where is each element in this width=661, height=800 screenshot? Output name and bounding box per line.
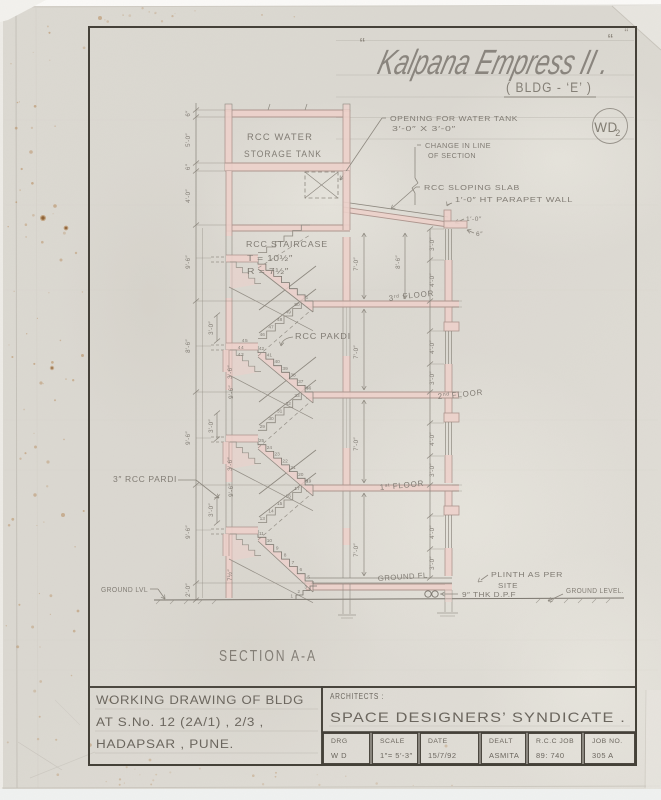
svg-text:4′-0″: 4′-0″ [429, 432, 436, 446]
svg-text:47: 47 [268, 325, 274, 331]
svg-text:2: 2 [297, 589, 300, 594]
svg-text:1′-0″ HT PARAPET WALL: 1′-0″ HT PARAPET WALL [455, 195, 573, 204]
svg-text:89: 740: 89: 740 [536, 751, 565, 760]
svg-text:SECTION A-A: SECTION A-A [219, 648, 317, 665]
svg-text:8: 8 [284, 553, 287, 559]
svg-text:3′-0″: 3′-0″ [429, 371, 436, 385]
svg-text:3′-0″: 3′-0″ [429, 463, 436, 477]
svg-text:13: 13 [260, 516, 266, 522]
svg-text:6″: 6″ [185, 163, 192, 170]
svg-text:6: 6 [299, 567, 302, 573]
svg-text:24: 24 [267, 445, 273, 451]
svg-text:9′-6″: 9′-6″ [228, 385, 235, 399]
svg-text:6″: 6″ [476, 231, 483, 238]
svg-text:GROUND LVL: GROUND LVL [101, 587, 148, 594]
svg-text:9″ THK D.P.F: 9″ THK D.P.F [462, 592, 516, 599]
svg-text:rd: rd [394, 293, 400, 300]
svg-text:„: „ [624, 27, 629, 41]
svg-text:T = 10½″: T = 10½″ [247, 254, 293, 263]
svg-text:46: 46 [260, 332, 266, 338]
svg-text:„: „ [359, 36, 365, 53]
svg-text:3′-6″: 3′-6″ [227, 365, 234, 379]
svg-text:41: 41 [267, 353, 273, 359]
svg-text:9′-6″: 9′-6″ [185, 255, 192, 269]
svg-text:50: 50 [294, 302, 300, 308]
svg-text:14: 14 [268, 509, 274, 515]
svg-text:GROUND LEVEL.: GROUND LEVEL. [566, 588, 624, 595]
svg-text:AT S.No. 12 (2A/1) , 2/3 ,: AT S.No. 12 (2A/1) , 2/3 , [96, 717, 264, 729]
svg-text:RCC PAKDI: RCC PAKDI [295, 332, 351, 341]
svg-text:4′-0″: 4′-0″ [429, 340, 436, 354]
svg-text:3: 3 [304, 585, 307, 590]
svg-text:45: 45 [242, 338, 249, 344]
svg-text:39: 39 [282, 366, 288, 372]
svg-text:8′-6″: 8′-6″ [185, 339, 192, 353]
svg-text:4′-0″: 4′-0″ [429, 525, 436, 539]
svg-text:44: 44 [238, 345, 245, 351]
svg-text:305 A: 305 A [592, 751, 614, 760]
svg-text:R = 7½″: R = 7½″ [247, 267, 289, 276]
svg-text:4′-0″: 4′-0″ [185, 189, 192, 203]
svg-text:3′-0″: 3′-0″ [429, 556, 436, 570]
svg-text:4: 4 [311, 580, 314, 585]
svg-text:DATE: DATE [428, 738, 448, 745]
svg-text:8′-6″: 8′-6″ [395, 255, 402, 269]
svg-text:33: 33 [294, 393, 300, 399]
svg-text:3′-0″: 3′-0″ [429, 237, 436, 251]
svg-text:9′-6″: 9′-6″ [185, 431, 192, 445]
svg-text:43: 43 [238, 352, 245, 358]
svg-text:Kalpana Empress II .: Kalpana Empress II . [374, 43, 615, 82]
svg-text:6″: 6″ [185, 110, 192, 117]
svg-text:7′-0″: 7′-0″ [353, 543, 360, 557]
svg-text:1″= 5′-3″: 1″= 5′-3″ [380, 751, 413, 760]
svg-text:30: 30 [268, 416, 274, 422]
svg-text:7′-0″: 7′-0″ [353, 437, 360, 451]
svg-text:2: 2 [615, 128, 621, 138]
svg-text:9′-6″: 9′-6″ [185, 525, 192, 539]
svg-text:40: 40 [275, 359, 281, 365]
svg-text:22: 22 [282, 458, 288, 464]
svg-text:7½″: 7½″ [227, 569, 234, 581]
svg-text:OF SECTION: OF SECTION [428, 151, 476, 160]
svg-text:19: 19 [306, 479, 312, 485]
svg-text:20: 20 [298, 472, 304, 478]
svg-text:ARCHITECTS :: ARCHITECTS : [330, 692, 384, 701]
svg-text:17: 17 [294, 486, 300, 492]
svg-text:ASMITA: ASMITA [489, 751, 519, 760]
svg-text:3′-0″: 3′-0″ [208, 419, 215, 433]
svg-text:WORKING DRAWING OF BLDG: WORKING DRAWING OF BLDG [96, 695, 304, 707]
svg-text:49: 49 [286, 310, 292, 316]
svg-text:31: 31 [277, 409, 283, 415]
svg-text:SPACE DESIGNERS’ SYNDICATE .: SPACE DESIGNERS’ SYNDICATE . [330, 709, 626, 725]
svg-text:9: 9 [276, 545, 279, 551]
svg-text:37: 37 [298, 379, 304, 385]
svg-text:JOB NO.: JOB NO. [592, 738, 623, 745]
svg-text:7′-0″: 7′-0″ [353, 345, 360, 359]
svg-text:3′-0″: 3′-0″ [208, 321, 215, 335]
svg-text:R.C.C JOB: R.C.C JOB [536, 738, 574, 745]
svg-text:3′-6″: 3′-6″ [227, 457, 234, 471]
svg-text:15/7/92: 15/7/92 [428, 751, 457, 760]
svg-text:36: 36 [306, 386, 312, 392]
svg-text:1: 1 [290, 594, 293, 599]
svg-text:PLINTH AS PER: PLINTH AS PER [491, 570, 563, 579]
svg-text:1′-0″: 1′-0″ [466, 216, 482, 223]
svg-text:SCALE: SCALE [380, 738, 405, 745]
svg-text:SITE: SITE [498, 581, 518, 590]
svg-text:11: 11 [259, 531, 264, 537]
svg-text:48: 48 [277, 317, 283, 323]
svg-text:W D: W D [331, 751, 347, 760]
svg-text:RCC WATER: RCC WATER [247, 132, 313, 142]
svg-text:4′-0″: 4′-0″ [429, 273, 436, 287]
svg-text:OPENING FOR WATER TANK: OPENING FOR WATER TANK [390, 114, 518, 123]
svg-text:38: 38 [290, 372, 296, 378]
svg-text:„: „ [607, 32, 613, 49]
svg-text:5: 5 [307, 575, 310, 581]
svg-text:( BLDG - ‘E’ ): ( BLDG - ‘E’ ) [506, 80, 592, 95]
svg-text:RCC SLOPING SLAB: RCC SLOPING SLAB [424, 183, 520, 192]
svg-text:29: 29 [260, 424, 266, 430]
svg-text:7: 7 [292, 560, 295, 566]
svg-text:RCC STAIRCASE: RCC STAIRCASE [246, 239, 328, 249]
svg-text:3′-0″: 3′-0″ [208, 503, 215, 517]
svg-text:CHANGE IN LINE: CHANGE IN LINE [425, 141, 491, 150]
svg-text:DRG: DRG [331, 738, 348, 745]
svg-text:st: st [385, 482, 391, 489]
svg-text:23: 23 [275, 452, 281, 458]
svg-text:2′-0″: 2′-0″ [185, 583, 192, 597]
svg-text:5′-0″: 5′-0″ [185, 133, 192, 147]
svg-text:15: 15 [277, 501, 283, 507]
svg-text:3′-0″ X 3′-0″: 3′-0″ X 3′-0″ [392, 124, 456, 133]
svg-text:3″ RCC PARDI: 3″ RCC PARDI [113, 475, 177, 484]
svg-text:7′-0″: 7′-0″ [353, 257, 360, 271]
svg-text:21: 21 [290, 465, 296, 471]
svg-text:9′-6″: 9′-6″ [228, 483, 235, 497]
svg-text:10: 10 [267, 538, 273, 544]
svg-text:DEALT: DEALT [489, 738, 513, 745]
svg-text:nd: nd [443, 391, 450, 398]
svg-text:STORAGE TANK: STORAGE TANK [244, 149, 322, 159]
svg-text:HADAPSAR , PUNE.: HADAPSAR , PUNE. [96, 739, 234, 751]
